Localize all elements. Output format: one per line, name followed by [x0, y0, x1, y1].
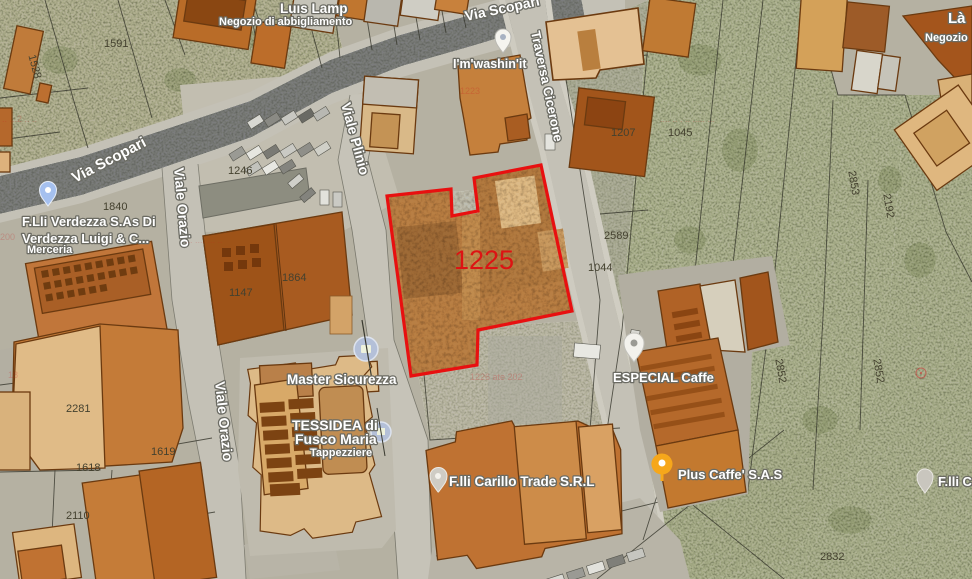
- svg-text:2110: 2110: [66, 510, 90, 522]
- svg-text:... .... ... ..: ... .... ... ..: [185, 235, 223, 245]
- svg-text:200: 200: [0, 232, 15, 242]
- svg-text:2832: 2832: [820, 551, 844, 563]
- svg-text:Fusco Maria: Fusco Maria: [295, 431, 377, 447]
- svg-text:Plus Caffe' S.A.S: Plus Caffe' S.A.S: [678, 467, 783, 482]
- svg-text:1840: 1840: [103, 201, 127, 213]
- svg-text:Negozio di abbigliamento: Negozio di abbigliamento: [219, 16, 353, 28]
- svg-text:1226 ate 202: 1226 ate 202: [470, 372, 523, 382]
- svg-text:Tappezziere: Tappezziere: [310, 447, 372, 459]
- svg-text:2589: 2589: [604, 230, 628, 242]
- svg-text:Master Sicurezza: Master Sicurezza: [287, 372, 397, 387]
- svg-text:2281: 2281: [66, 403, 90, 415]
- svg-text:Negozio: Negozio: [925, 32, 968, 44]
- svg-text:1044: 1044: [588, 262, 612, 274]
- svg-text:F.lli Carillo Trade S.R.L: F.lli Carillo Trade S.R.L: [449, 474, 595, 489]
- svg-text:1619: 1619: [151, 446, 175, 458]
- svg-text:18: 18: [8, 370, 18, 380]
- svg-text:1147: 1147: [229, 287, 253, 299]
- svg-text:Là: Là: [948, 10, 966, 27]
- svg-text:F.lli C...: F.lli C...: [938, 474, 972, 489]
- svg-text:1207: 1207: [611, 127, 635, 139]
- svg-text:.. ...2 .. ..: .. ...2 .. ..: [2, 114, 37, 124]
- svg-text:1864: 1864: [282, 272, 306, 284]
- svg-text:Merceria: Merceria: [27, 244, 73, 256]
- svg-text:ESPECIAL Caffe: ESPECIAL Caffe: [613, 370, 714, 385]
- svg-text:I'm'washin'it: I'm'washin'it: [453, 57, 527, 71]
- svg-text:1246: 1246: [228, 165, 252, 177]
- svg-text:1045: 1045: [668, 127, 692, 139]
- svg-text:.... .. . .. ..... ...: .... .. . .. ..... ...: [660, 114, 715, 124]
- svg-text:1591: 1591: [104, 38, 128, 50]
- svg-text:Luıs Lamp: Luıs Lamp: [280, 1, 348, 16]
- svg-text:F.Lli Verdezza S.As Di: F.Lli Verdezza S.As Di: [22, 214, 156, 229]
- svg-text:1618: 1618: [76, 462, 100, 474]
- svg-text:1223: 1223: [460, 86, 480, 96]
- svg-text:1225: 1225: [454, 245, 514, 275]
